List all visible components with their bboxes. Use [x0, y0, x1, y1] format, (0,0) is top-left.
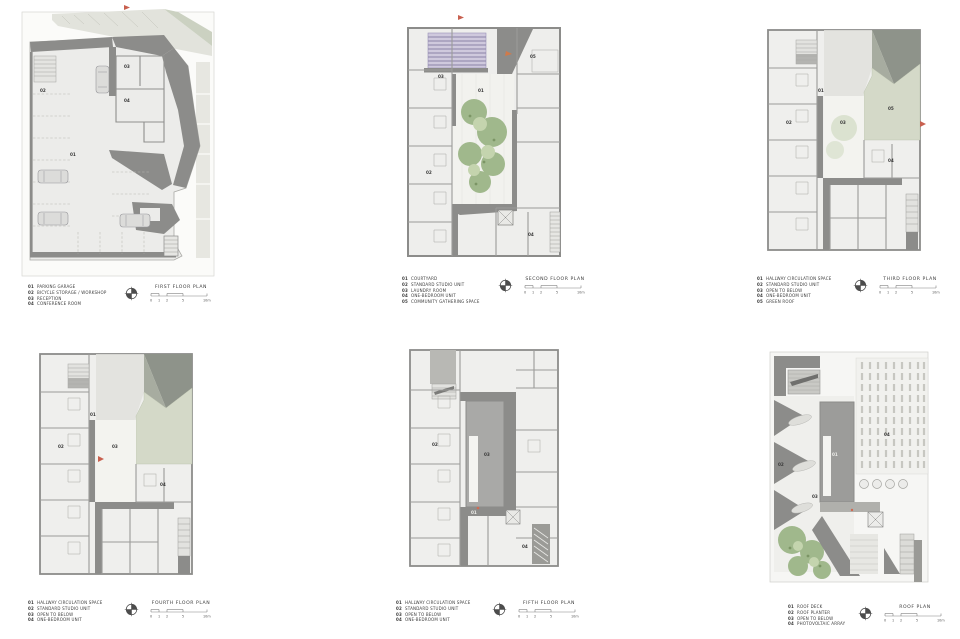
title-block: FIFTH FLOOR PLAN 0 1 2 5 10m — [517, 601, 581, 619]
north-arrow-icon — [853, 278, 868, 293]
title-block: THIRD FLOOR PLAN 0 1 2 5 10m — [878, 277, 942, 295]
scale-label: 10m — [932, 291, 940, 295]
room-tag: 01 — [832, 452, 838, 457]
legend-label: STANDARD STUDIO UNIT — [405, 607, 458, 612]
fifth-floor-plan-drawing: 01 02 03 04 — [404, 342, 564, 574]
room-tag: 03 — [484, 452, 490, 457]
plan-title: SECOND FLOOR PLAN — [525, 277, 584, 282]
scale-bar: 0 1 2 5 10m — [149, 292, 213, 303]
legend-label: STANDARD STUDIO UNIT — [766, 283, 819, 288]
roof-patch — [430, 350, 456, 384]
legend-label: COMMUNITY GATHERING SPACE — [411, 300, 480, 305]
section-marker-icon — [458, 15, 464, 20]
scale-label: 5 — [182, 299, 184, 303]
north-arrow-icon — [858, 606, 873, 621]
scale-label: 1 — [158, 615, 160, 619]
fifth-floor-legend: 01HALLWAY CIRCULATION SPACE 02STANDARD S… — [396, 601, 482, 623]
scale-label: 2 — [166, 299, 168, 303]
scale-label: 5 — [550, 615, 552, 619]
room-tag: 02 — [778, 462, 784, 467]
scale-label: 1 — [532, 291, 534, 295]
scale-label: 2 — [166, 615, 168, 619]
room-tag: 04 — [884, 432, 890, 437]
legend-num: 05 — [402, 300, 408, 305]
legend-item: 02STANDARD STUDIO UNIT — [28, 607, 114, 612]
north-arrow-icon — [124, 286, 139, 301]
legend-item: 02STANDARD STUDIO UNIT — [396, 607, 482, 612]
fifth-floor-plan: 01 02 03 04 — [404, 342, 564, 574]
plan-title: FIRST FLOOR PLAN — [155, 285, 207, 290]
scale-label: 10m — [203, 615, 211, 619]
second-floor-caption: 01COURTYARD 02STANDARD STUDIO UNIT 03LAU… — [402, 277, 587, 305]
legend-num: 02 — [28, 607, 34, 612]
second-floor-plan: 01 02 03 04 05 — [400, 12, 568, 264]
plan-title: FOURTH FLOOR PLAN — [152, 601, 210, 606]
scale-label: 5 — [911, 291, 913, 295]
scale-label: 1 — [887, 291, 889, 295]
third-floor-legend: 01HALLWAY CIRCULATION SPACE 02STANDARD S… — [757, 277, 843, 305]
scale-label: 0 — [150, 615, 152, 619]
scale-label: 0 — [884, 619, 886, 623]
first-floor-plan-drawing: 01 02 03 04 — [12, 4, 242, 284]
fourth-floor-plan: 01 02 03 04 — [32, 342, 200, 582]
section-marker-icon — [851, 509, 853, 511]
plan-title: FIFTH FLOOR PLAN — [523, 601, 575, 606]
room-tag: 04 — [888, 158, 894, 163]
legend-item: 02BICYCLE STORAGE / WORKSHOP — [28, 291, 114, 296]
third-floor-plan-drawing: 01 02 03 04 05 — [760, 18, 928, 258]
roof-caption: 01ROOF DECK 02ROOF PLANTER 03OPEN TO BEL… — [788, 605, 947, 627]
scale-bar: 0 1 2 5 10m — [878, 284, 942, 295]
second-floor-plan-drawing: 01 02 03 04 05 — [400, 12, 568, 264]
stairs — [432, 384, 456, 399]
third-floor-plan: 01 02 03 04 05 — [760, 18, 928, 258]
roof-legend: 01ROOF DECK 02ROOF PLANTER 03OPEN TO BEL… — [788, 605, 848, 627]
legend-label: STANDARD STUDIO UNIT — [411, 283, 464, 288]
roof-plan-drawing: 01 02 03 04 — [764, 344, 934, 588]
third-floor-caption: 01HALLWAY CIRCULATION SPACE 02STANDARD S… — [757, 277, 942, 305]
section-marker-icon — [920, 121, 926, 127]
scale-label: 0 — [879, 291, 881, 295]
room-tag: 04 — [124, 98, 130, 103]
roof-plan: 01 02 03 04 — [764, 344, 934, 588]
legend-label: ONE-BEDROOM UNIT — [37, 618, 82, 623]
scale-label: 0 — [518, 615, 520, 619]
scale-label: 5 — [182, 615, 184, 619]
scale-label: 2 — [900, 619, 902, 623]
scale-label: 5 — [556, 291, 558, 295]
first-floor-plan: 01 02 03 04 — [12, 4, 242, 284]
room-tag: 01 — [70, 152, 76, 157]
room-tag: 02 — [426, 170, 432, 175]
scale-label: 1 — [892, 619, 894, 623]
section-marker-icon — [477, 507, 480, 510]
legend-num: 04 — [396, 618, 402, 623]
legend-item: 04PHOTOVOLTAIC ARRAY — [788, 622, 848, 627]
scale-label: 2 — [540, 291, 542, 295]
legend-num: 02 — [788, 611, 794, 616]
scale-label: 1 — [158, 299, 160, 303]
room-tag: 03 — [812, 494, 818, 499]
room-tag: 02 — [40, 88, 46, 93]
plan-title: ROOF PLAN — [899, 605, 931, 610]
legend-label: GREEN ROOF — [766, 300, 795, 305]
title-block: SECOND FLOOR PLAN 0 1 2 5 10m — [523, 277, 587, 295]
scale-bar: 0 1 2 5 10m — [149, 608, 213, 619]
first-floor-caption: 01PARKING GARAGE 02BICYCLE STORAGE / WOR… — [28, 285, 213, 307]
legend-item: 05COMMUNITY GATHERING SPACE — [402, 300, 488, 305]
legend-label: STANDARD STUDIO UNIT — [37, 607, 90, 612]
photovoltaic-array — [856, 358, 928, 474]
legend-num: 04 — [788, 622, 794, 627]
legend-num: 02 — [402, 283, 408, 288]
second-floor-legend: 01COURTYARD 02STANDARD STUDIO UNIT 03LAU… — [402, 277, 488, 305]
legend-item: 04ONE-BEDROOM UNIT — [28, 618, 114, 623]
room-tag: 04 — [160, 482, 166, 487]
elevator — [868, 512, 883, 527]
room-tag: 01 — [478, 88, 484, 93]
room-tag: 01 — [90, 412, 96, 417]
room-tag: 04 — [522, 544, 528, 549]
stairs-dark — [532, 524, 550, 564]
room-tag: 02 — [786, 120, 792, 125]
legend-item: 02STANDARD STUDIO UNIT — [402, 283, 488, 288]
first-floor-legend: 01PARKING GARAGE 02BICYCLE STORAGE / WOR… — [28, 285, 114, 307]
room-tag: 02 — [58, 444, 64, 449]
plan-title: THIRD FLOOR PLAN — [883, 277, 937, 282]
scale-label: 2 — [895, 291, 897, 295]
legend-item: 05GREEN ROOF — [757, 300, 843, 305]
room-tag: 02 — [432, 442, 438, 447]
stair-bulkhead — [788, 370, 820, 394]
scale-label: 1 — [526, 615, 528, 619]
legend-item: 02ROOF PLANTER — [788, 611, 848, 616]
fourth-floor-plan-drawing: 01 02 03 04 — [32, 342, 200, 582]
north-arrow-icon — [498, 278, 513, 293]
room-tag: 04 — [528, 232, 534, 237]
legend-item: 02STANDARD STUDIO UNIT — [757, 283, 843, 288]
legend-label: CONFERENCE ROOM — [37, 302, 81, 307]
scale-bar: 0 1 2 5 10m — [883, 612, 947, 623]
room-tag: 01 — [471, 510, 477, 515]
legend-num: 02 — [396, 607, 402, 612]
scale-label: 10m — [571, 615, 579, 619]
fourth-floor-caption: 01HALLWAY CIRCULATION SPACE 02STANDARD S… — [28, 601, 213, 623]
elevator — [506, 510, 520, 524]
deck-hatch — [850, 534, 878, 574]
legend-label: ONE-BEDROOM UNIT — [405, 618, 450, 623]
room-tag: 05 — [888, 106, 894, 111]
room-tag: 03 — [438, 74, 444, 79]
title-block: FIRST FLOOR PLAN 0 1 2 5 10m — [149, 285, 213, 303]
drawing-sheet: 01 02 03 04 — [0, 0, 960, 639]
scale-label: 10m — [203, 299, 211, 303]
scale-bar: 0 1 2 5 10m — [517, 608, 581, 619]
legend-num: 04 — [28, 618, 34, 623]
section-marker-icon — [124, 5, 130, 10]
elevator — [498, 210, 513, 225]
legend-num: 02 — [28, 291, 34, 296]
room-tag: 01 — [818, 88, 824, 93]
scale-label: 0 — [150, 299, 152, 303]
fifth-floor-caption: 01HALLWAY CIRCULATION SPACE 02STANDARD S… — [396, 601, 581, 623]
legend-item: 04ONE-BEDROOM UNIT — [396, 618, 482, 623]
legend-num: 02 — [757, 283, 763, 288]
room-tag: 03 — [840, 120, 846, 125]
scale-label: 10m — [577, 291, 585, 295]
legend-label: ROOF PLANTER — [797, 611, 830, 616]
legend-item: 04CONFERENCE ROOM — [28, 302, 114, 307]
scale-label: 2 — [534, 615, 536, 619]
courtyard-open-to-below — [96, 420, 136, 502]
scale-label: 5 — [916, 619, 918, 623]
north-arrow-icon — [124, 602, 139, 617]
legend-label: BICYCLE STORAGE / WORKSHOP — [37, 291, 106, 296]
legend-num: 05 — [757, 300, 763, 305]
courtyard-open-to-below — [824, 96, 864, 178]
fourth-floor-legend: 01HALLWAY CIRCULATION SPACE 02STANDARD S… — [28, 601, 114, 623]
north-arrow-icon — [492, 602, 507, 617]
stairs — [550, 212, 560, 252]
title-block: ROOF PLAN 0 1 2 5 10m — [883, 605, 947, 623]
laundry-louver-roof — [424, 33, 488, 73]
title-block: FOURTH FLOOR PLAN 0 1 2 5 10m — [149, 601, 213, 619]
room-tag: 05 — [530, 54, 536, 59]
room-tag: 03 — [124, 64, 130, 69]
legend-label: PHOTOVOLTAIC ARRAY — [797, 622, 845, 627]
scale-label: 0 — [524, 291, 526, 295]
room-tag: 03 — [112, 444, 118, 449]
legend-num: 04 — [28, 302, 34, 307]
scale-bar: 0 1 2 5 10m — [523, 284, 587, 295]
scale-label: 10m — [937, 619, 945, 623]
